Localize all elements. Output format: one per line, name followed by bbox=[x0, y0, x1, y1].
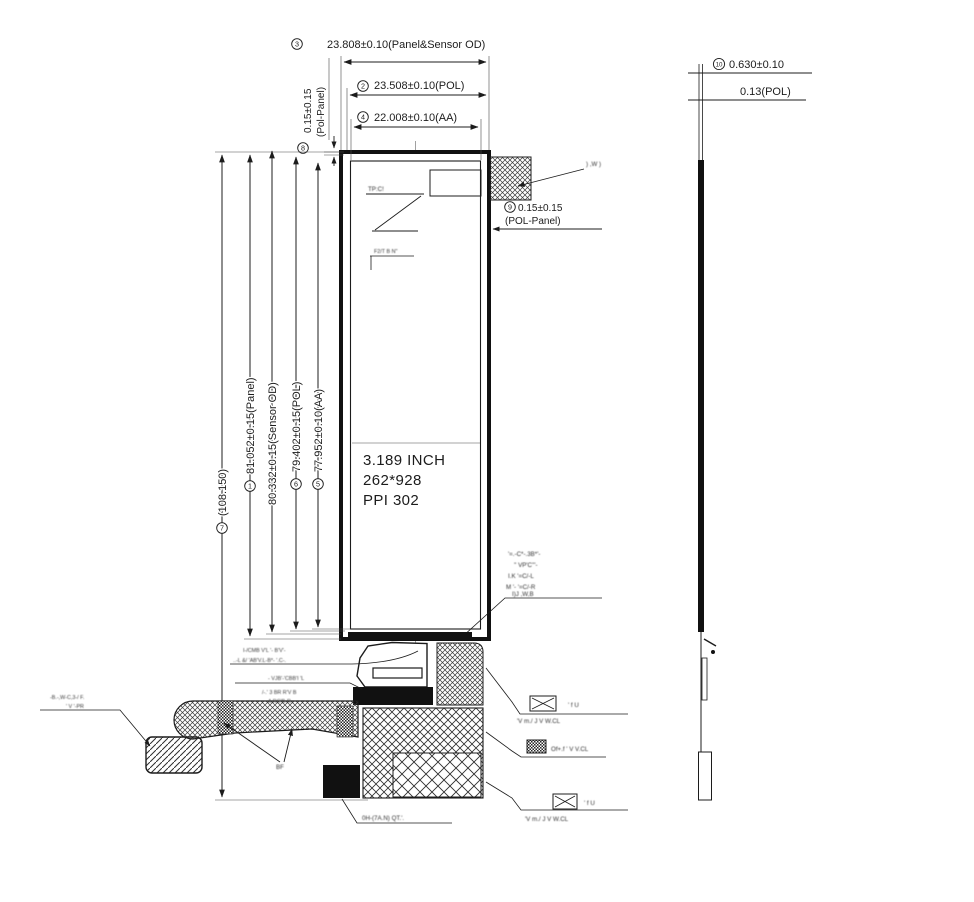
connector-note-a-l1: I-/CMB V'L '- B'V'- bbox=[243, 648, 286, 654]
bf-leader-2 bbox=[284, 729, 292, 762]
top-right-adhesive: ) ,W ) 9 0.15±0.15 (POL-Panel) bbox=[490, 157, 602, 229]
upper-right-hatch-block bbox=[437, 643, 483, 705]
legend-item-1: ' f U 'V m./ J V W.CL bbox=[486, 668, 628, 725]
dim-label-aa-width: 22.008±0.10(AA) bbox=[374, 112, 457, 124]
top-width-dimensions: 3 23.808±0.10(Panel&Sensor OD) 2 23.508±… bbox=[292, 39, 489, 166]
circled-number-6: 6 bbox=[291, 479, 302, 490]
connector-note-b-leader bbox=[235, 683, 362, 689]
circled-number-10: 10 bbox=[713, 58, 724, 69]
side-connector-dot bbox=[711, 650, 715, 654]
dim-label-overall-height: (108.150) bbox=[217, 469, 229, 516]
connector-note-b-l2: /-.' 3 BR R'V B bbox=[262, 690, 297, 696]
legend-1-leader bbox=[486, 668, 628, 714]
legend-1-text-a: ' f U bbox=[568, 702, 579, 709]
dim-label-pol-panel-top2: (Pol-Panel) bbox=[316, 87, 327, 137]
lcd-outline-drawing: TP:C! F2/T B N'' 3.189 INCH 262*928 PPI … bbox=[0, 0, 974, 902]
fpc-note-leader bbox=[40, 710, 150, 746]
dim-label-panel-od-width: 23.808±0.10(Panel&Sensor OD) bbox=[327, 39, 485, 51]
dim-num: 5 bbox=[316, 480, 320, 489]
mechanical-drawing-canvas: TP:C! F2/T B N'' 3.189 INCH 262*928 PPI … bbox=[0, 0, 974, 902]
circled-number-7: 7 bbox=[217, 523, 228, 534]
legend-3-text-a: ' f U bbox=[584, 800, 595, 807]
side-profile-body bbox=[698, 160, 704, 632]
spec-ppi: PPI 302 bbox=[363, 492, 419, 509]
panel-outer-outline bbox=[341, 152, 489, 639]
dim-label-pol-width: 23.508±0.10(POL) bbox=[374, 80, 464, 92]
legend-item-3: ' f U 'V m./ J V W.CL bbox=[486, 782, 628, 823]
inner-hatch-block bbox=[393, 753, 481, 797]
dim-label-aa-height: 77.952±0.10(AA) bbox=[313, 389, 325, 472]
dim-label-pol-thickness: 0.13(POL) bbox=[740, 86, 791, 98]
dim-num: 8 bbox=[301, 144, 305, 153]
fpc-stiffener-2 bbox=[337, 706, 353, 737]
fpc-note: -B.-,W-C,3-/ F. ' V '-PR bbox=[40, 695, 150, 746]
dim-label-pol-panel-side: 0.15±0.15 bbox=[518, 203, 563, 214]
connector-note-a-l2: ..-L &/ 'AB'V.L-B*- '.C-. bbox=[233, 658, 286, 664]
circled-number-1: 1 bbox=[245, 481, 256, 492]
circled-number-5: 5 bbox=[313, 479, 324, 490]
material-legend: ' f U 'V m./ J V W.CL Of+.f ' V V.CL ' f… bbox=[486, 668, 628, 823]
circled-number-9: 9 bbox=[505, 202, 516, 213]
corner-note-l5: I)J ,W,B bbox=[512, 591, 534, 598]
bottom-note-text: 0H-(7A.N) QT.'. bbox=[362, 815, 404, 822]
dim-num: 4 bbox=[361, 113, 365, 122]
legend-3-text-b: 'V m./ J V W.CL bbox=[525, 816, 569, 823]
connector-body bbox=[357, 643, 427, 688]
side-fpc-fold bbox=[699, 752, 712, 800]
inner-note-text: F2/T B N'' bbox=[374, 249, 398, 255]
dim-label-thickness: 0.630±0.10 bbox=[729, 59, 784, 71]
panel-bottom-bar bbox=[348, 632, 472, 640]
adhesive-note-text: ) ,W ) bbox=[586, 161, 601, 168]
circled-number-3: 3 bbox=[292, 39, 303, 50]
dim-num: 9 bbox=[508, 203, 512, 212]
fpc-stiffener-1 bbox=[218, 701, 233, 734]
connector-note-b-l1: - VJB'-'CBB'I 'L bbox=[268, 676, 304, 682]
connector-slot bbox=[373, 668, 422, 678]
connector-note-b-l3: A RC'B-R.. bbox=[268, 699, 294, 705]
dim-label-pol-height: 79.402±0.15(POL) bbox=[291, 382, 303, 472]
dim-pol-panel-top: 0.15±0.15 (Pol-Panel) 8 bbox=[298, 58, 344, 166]
corner-note-l4: M '- '=C/-R bbox=[506, 584, 536, 591]
bottom-assembly: BF I-/CMB V'L '- B'V'- ..-L &/ 'AB'V.L-B… bbox=[40, 632, 483, 823]
legend-2-swatch bbox=[527, 740, 546, 753]
spec-size: 3.189 INCH bbox=[363, 452, 445, 469]
dim-num: 2 bbox=[361, 82, 365, 91]
corner-note-l3: I.K '=C/-L bbox=[508, 573, 534, 580]
fpc-band bbox=[174, 701, 358, 739]
fpc-note-l2: ' V '-PR bbox=[66, 704, 84, 710]
legend-item-2: Of+.f ' V V.CL bbox=[486, 732, 606, 757]
dim-num: 3 bbox=[295, 40, 299, 49]
dim-label-pol-panel-side2: (POL-Panel) bbox=[505, 216, 561, 227]
dim-label-panel-height: 81.052±0.15(Panel) bbox=[245, 377, 257, 474]
adhesive-hatch-block bbox=[490, 157, 531, 200]
dim-num: 7 bbox=[220, 524, 224, 533]
spec-resolution: 262*928 bbox=[363, 472, 422, 489]
connector-black-bar bbox=[353, 687, 433, 705]
bottom-note: 0H-(7A.N) QT.'. bbox=[342, 799, 452, 823]
dim-label-pol-panel-top: 0.15±0.15 bbox=[303, 88, 314, 133]
dim-num: 1 bbox=[248, 482, 252, 491]
dim-num: 6 bbox=[294, 480, 298, 489]
dim-num: 10 bbox=[716, 61, 723, 68]
fpc-end-connector-block bbox=[146, 737, 202, 773]
dim-label-sensor-od-height: 80.332±0.15(Sensor OD) bbox=[267, 382, 279, 505]
legend-2-text: Of+.f ' V V.CL bbox=[551, 746, 589, 753]
bf-label: BF bbox=[276, 764, 284, 771]
corner-note-l2: '' VP'C'''- bbox=[514, 562, 538, 569]
corner-note-l1: '=.-C*-.3B*'- bbox=[508, 551, 540, 558]
tp-label: TP:C! bbox=[368, 186, 384, 193]
circled-number-2: 2 bbox=[358, 81, 369, 92]
side-connector-outline bbox=[702, 658, 707, 700]
side-view: 10 0.630±0.10 0.13(POL) bbox=[688, 58, 812, 800]
fpc-note-l1: -B.-,W-C,3-/ F. bbox=[50, 695, 84, 701]
side-connector-tick bbox=[704, 639, 716, 646]
panel-front-view: TP:C! F2/T B N'' 3.189 INCH 262*928 PPI … bbox=[341, 141, 489, 657]
circled-number-4: 4 bbox=[358, 112, 369, 123]
black-component-block bbox=[323, 765, 360, 798]
legend-1-text-b: 'V m./ J V W.CL bbox=[517, 718, 561, 725]
